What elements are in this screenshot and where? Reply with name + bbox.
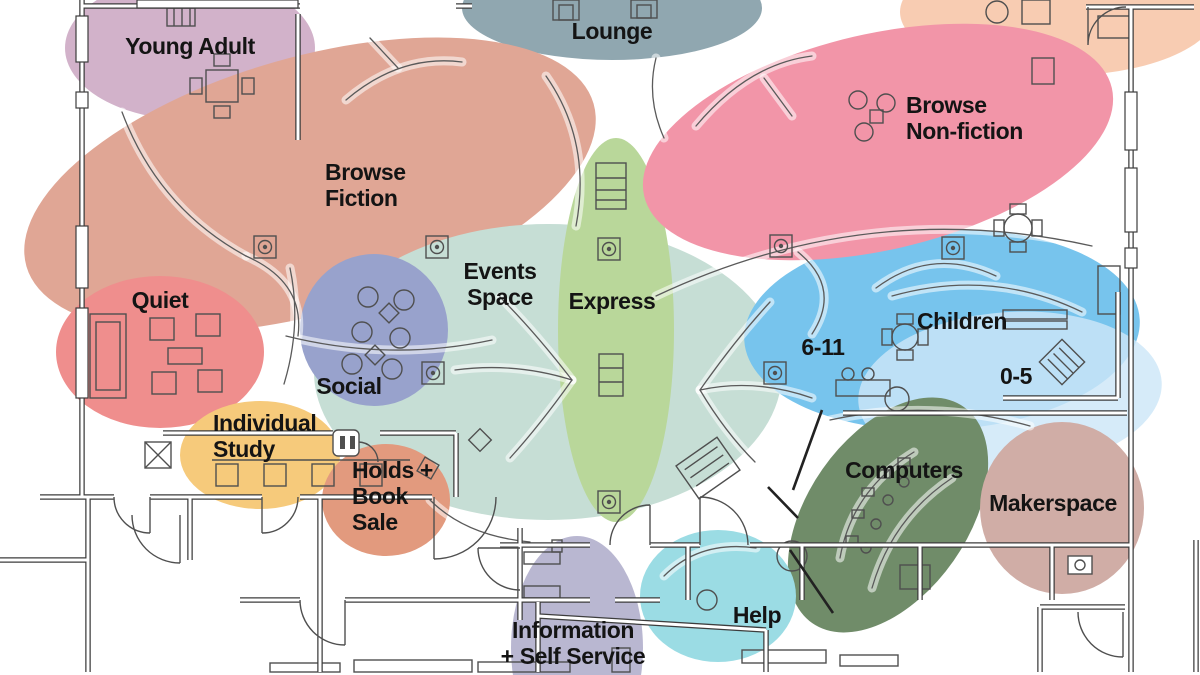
sink-fixture xyxy=(1068,556,1092,574)
label-line: Fiction xyxy=(325,185,406,211)
elevator-shaft xyxy=(145,442,171,468)
label-children-6-11: 6-11 xyxy=(801,334,844,360)
window xyxy=(137,0,298,8)
label-events-space: Events Space xyxy=(463,258,536,310)
door-swing xyxy=(132,515,180,563)
label-computers: Computers xyxy=(845,457,963,483)
label-line: Non-fiction xyxy=(906,118,1023,144)
label-browse-nonfiction: Browse Non-fiction xyxy=(906,92,1023,144)
window xyxy=(1125,248,1137,268)
door-swing xyxy=(478,548,520,590)
label-line: Information xyxy=(501,617,646,643)
window xyxy=(76,16,88,62)
label-lounge: Lounge xyxy=(572,18,653,44)
label-line: Space xyxy=(463,284,536,310)
label-children-0-5: 0-5 xyxy=(1000,363,1032,389)
label-holds-book-sale: Holds + Book Sale xyxy=(352,457,433,535)
label-line: Book xyxy=(352,483,433,509)
label-line: Study xyxy=(213,436,316,462)
label-information-self-service: Information + Self Service xyxy=(501,617,646,669)
window xyxy=(76,226,88,288)
label-line: Holds + xyxy=(352,457,433,483)
window xyxy=(1125,92,1137,150)
bottom-left-room-walls xyxy=(0,497,334,672)
restroom-icon xyxy=(333,430,359,456)
window xyxy=(76,92,88,108)
label-makerspace: Makerspace xyxy=(989,490,1117,516)
bottom-left-room-walls xyxy=(0,497,334,672)
label-individual-study: Individual Study xyxy=(213,410,316,462)
label-line: Browse xyxy=(325,159,406,185)
label-line: Browse xyxy=(906,92,1023,118)
label-children: Children xyxy=(917,308,1007,334)
window xyxy=(76,308,88,398)
library-floorplan-diagram: Young Adult Lounge Browse Fiction Browse… xyxy=(0,0,1200,675)
door-swing xyxy=(1078,612,1123,657)
label-young-adult: Young Adult xyxy=(125,33,255,59)
label-quiet: Quiet xyxy=(132,287,189,313)
label-line: Sale xyxy=(352,509,433,535)
label-social: Social xyxy=(316,373,381,399)
label-line: Events xyxy=(463,258,536,284)
label-express: Express xyxy=(569,288,656,314)
label-browse-fiction: Browse Fiction xyxy=(325,159,406,211)
label-help: Help xyxy=(733,602,781,628)
label-line: Individual xyxy=(213,410,316,436)
label-line: + Self Service xyxy=(501,643,646,669)
window xyxy=(1125,168,1137,232)
